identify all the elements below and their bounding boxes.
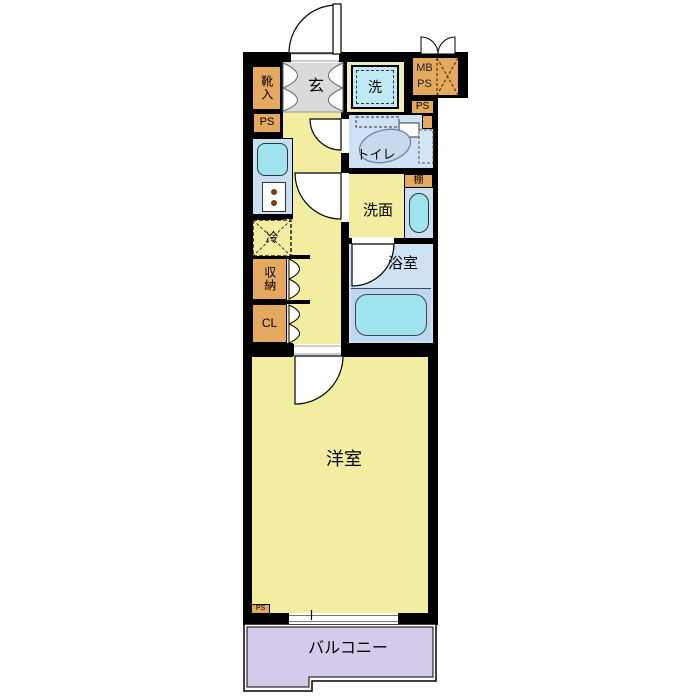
stove [262,182,286,212]
closet-label: CL [252,312,287,334]
meter-box-door-left-icon [421,37,438,54]
meter-box-door-right-icon [438,37,455,54]
toilet-door-gap [341,119,349,153]
balcony-window [289,613,398,624]
ps-topright-label: PS [411,100,434,114]
ps-bottom-label: PS [251,604,270,614]
toilet-side-cabinet [422,115,433,129]
washroom-label: 洗面 [352,200,404,222]
shelf-label: 棚 [404,174,433,188]
kitchen-sink [257,143,288,176]
entrance-door-leaf [333,4,341,54]
stove-burner-dot [271,189,277,195]
western-room-label: 洋室 [314,447,374,471]
entrance-label: 玄 [296,72,336,102]
stove-burner-dot [271,200,277,206]
ps-left-label: PS [253,113,281,133]
toilet-label: トイレ [350,146,402,163]
refrigerator-label: 冷 [258,226,286,250]
washer-label: 洗 [360,74,390,100]
entrance-door-swing-icon [289,5,337,53]
western-room-floor [252,356,428,613]
floor-plan: 玄 靴入 洗 MB PS PS PS トイレ 棚 洗面 冷 収納 CL 浴室 洋… [0,0,700,700]
balcony-label: バルコニー [298,638,398,660]
bathroom-label: 浴室 [376,255,430,273]
room-door-threshold [294,344,341,356]
washroom-door-gap [341,173,349,222]
bathtub [355,294,427,336]
mb-label: MB [412,61,437,77]
wash-basin [409,193,429,233]
storage-label: 収納 [256,260,283,298]
shoe-cabinet-label: 靴入 [254,68,279,108]
mb-ps-label: PS [412,77,437,93]
